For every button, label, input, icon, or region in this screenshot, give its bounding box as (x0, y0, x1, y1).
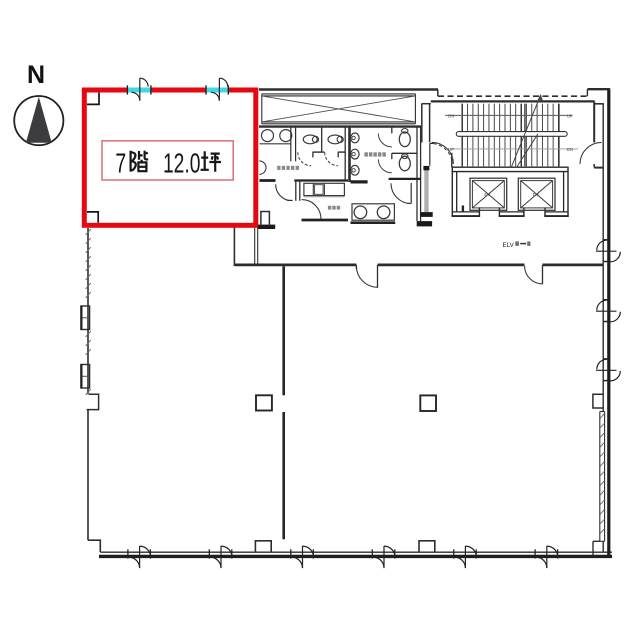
svg-text:UP: UP (448, 147, 454, 152)
svg-text:UP: UP (567, 113, 573, 118)
svg-text:DN: DN (567, 147, 573, 152)
svg-text:DN: DN (448, 113, 454, 118)
svg-text:N: N (27, 61, 45, 89)
svg-text:ELV: ELV (503, 242, 515, 249)
svg-text:EV: EV (484, 192, 490, 197)
svg-text:12.0: 12.0 (163, 147, 200, 178)
svg-text:7: 7 (115, 147, 126, 178)
svg-text:EV: EV (533, 192, 539, 197)
